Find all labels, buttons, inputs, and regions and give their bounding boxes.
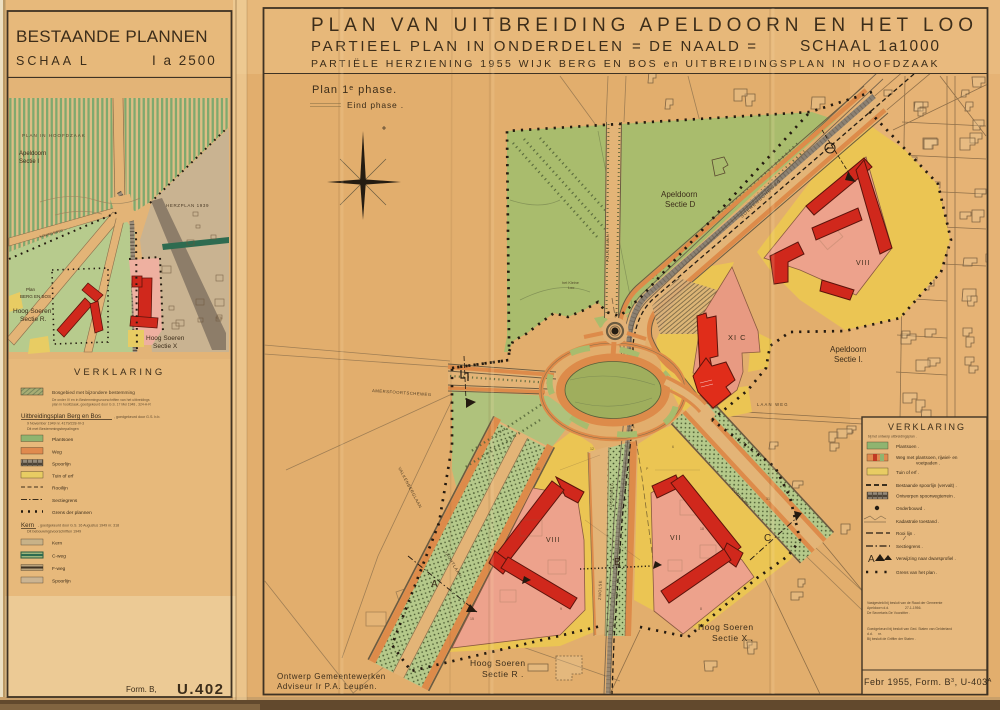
svg-text:A: A xyxy=(868,554,875,565)
svg-text:VII: VII xyxy=(670,535,682,542)
svg-text:Hoog Soeren: Hoog Soeren xyxy=(698,622,754,632)
svg-text:De onder IV en in Bestemmingsv: De onder IV en in Bestemmingsvoorschrift… xyxy=(52,398,150,402)
svg-text:6: 6 xyxy=(672,445,674,449)
svg-text:Rooi lijn .: Rooi lijn . xyxy=(896,531,915,536)
svg-text:Bestaande spoorlijn (vervalt): Bestaande spoorlijn (vervalt) . xyxy=(896,483,957,488)
svg-text:Uitbreidingsplan Berg en Bos: Uitbreidingsplan Berg en Bos xyxy=(21,413,101,420)
svg-text:Plantsoen: Plantsoen xyxy=(52,437,74,443)
svg-text:Spoorlijn: Spoorlijn xyxy=(52,462,71,468)
svg-text:Spoorlijn: Spoorlijn xyxy=(52,579,71,585)
svg-text:Sectie R.: Sectie R. xyxy=(20,316,47,323)
svg-text:voetpaden .: voetpaden . xyxy=(916,461,940,466)
svg-text:d.d.: d.d. xyxy=(867,632,873,636)
svg-text:BERG EN BOS: BERG EN BOS xyxy=(20,294,51,299)
svg-text:nr.: nr. xyxy=(878,632,882,636)
svg-text:PARTIËLE HERZIENING 1955: PARTIËLE HERZIENING 1955 WIJK BERG EN BO… xyxy=(311,58,938,70)
svg-text:Ontwerp Gemeentewerken: Ontwerp Gemeentewerken xyxy=(277,672,386,681)
svg-text:Verwijzing naar dwarsprofiel: Verwijzing naar dwarsprofiel . xyxy=(896,556,956,561)
svg-text:Bosgebied met bijzondere be: Bosgebied met bijzondere bestemming xyxy=(52,390,135,396)
svg-text:Apeldoorn: Apeldoorn xyxy=(830,345,866,354)
svg-text:U.402: U.402 xyxy=(177,681,225,698)
svg-text:PARTIEEL PLAN IN ONDERDELEN: PARTIEEL PLAN IN ONDERDELEN xyxy=(311,38,623,55)
svg-text:VERKLARING: VERKLARING xyxy=(74,367,165,378)
svg-text:Grens der plannen: Grens der plannen xyxy=(52,510,92,516)
svg-text:Sectiegrens: Sectiegrens xyxy=(52,498,78,504)
svg-text:Tuin of erf .: Tuin of erf . xyxy=(896,470,919,475)
svg-text:Grens van het plan .: Grens van het plan . xyxy=(896,570,937,575)
svg-text:Weg met plantsoen, rijwiel- en: Weg met plantsoen, rijwiel- en xyxy=(896,455,958,460)
svg-text:PLAN VAN UITBREIDING APELD: PLAN VAN UITBREIDING APELDOORN EN HET LO… xyxy=(311,15,975,36)
svg-text:9: 9 xyxy=(560,607,562,611)
svg-text:Adviseur Ir P.A. Leupen.: Adviseur Ir P.A. Leupen. xyxy=(277,682,377,691)
svg-text:Sectie D: Sectie D xyxy=(665,200,695,209)
svg-text:= DE NAALD =: = DE NAALD = xyxy=(632,38,757,55)
svg-text:Kadastrale toestand .: Kadastrale toestand . xyxy=(896,519,939,524)
svg-text:POLSELAAN: POLSELAAN xyxy=(605,234,610,262)
svg-text:SCHAA L: SCHAA L xyxy=(16,54,90,68)
svg-text:Plan: Plan xyxy=(26,287,36,292)
svg-text:VIII: VIII xyxy=(856,260,871,267)
svg-text:XI C: XI C xyxy=(728,333,747,342)
svg-text:het Kleine: het Kleine xyxy=(562,281,579,285)
svg-text:Apeldoorn: Apeldoorn xyxy=(661,190,697,199)
svg-text:, goedgekeurd door G.S. 16: , goedgekeurd door G.S. 16 Augustus 1949… xyxy=(38,524,119,528)
svg-text:8: 8 xyxy=(500,517,502,521)
svg-text:, goedgekeurd door G.S. b.b.: , goedgekeurd door G.S. b.b. xyxy=(114,415,160,419)
svg-text:Bij besluit de Griffier de: Bij besluit de Griffier der Staten . xyxy=(867,637,916,641)
svg-text:Sectie X: Sectie X xyxy=(153,343,178,350)
svg-text:41: 41 xyxy=(536,467,540,471)
svg-text:PLAN IN HOOFDZAAK: PLAN IN HOOFDZAAK xyxy=(22,133,86,138)
svg-text:Sectie X .: Sectie X . xyxy=(712,633,753,643)
svg-text:SCHAAL 1a1000: SCHAAL 1a1000 xyxy=(800,38,940,55)
svg-text:Onderbouwd .: Onderbouwd . xyxy=(896,506,925,511)
svg-text:De Secretaris De Voorzitter .: De Secretaris De Voorzitter . xyxy=(867,611,910,615)
svg-text:Plan 1e phase.: Plan 1e phase. xyxy=(312,84,397,96)
svg-text:Tuin of erf: Tuin of erf xyxy=(52,474,74,480)
svg-text:ZWOLSE: ZWOLSE xyxy=(597,580,603,600)
svg-text:27-1-1956.: 27-1-1956. xyxy=(905,606,921,610)
svg-text:B: B xyxy=(614,557,621,568)
svg-text:plan in hoofdzaak, goedgekeurd: plan in hoofdzaak, goedgekeurd door G.S.… xyxy=(52,403,151,407)
svg-text:9 November 1949 nr. 4179/228: 9 November 1949 nr. 4179/228-IV-3 xyxy=(27,422,84,426)
svg-text:Eind phase .: Eind phase . xyxy=(347,100,404,110)
svg-text:VERKLARING: VERKLARING xyxy=(888,422,966,432)
svg-text:I a 2500: I a 2500 xyxy=(152,53,217,68)
svg-text:Goedgekeurd bij besluit van: Goedgekeurd bij besluit van Ged. Staten … xyxy=(867,627,952,631)
svg-text:Weg: Weg xyxy=(52,450,62,456)
svg-text:Ontworpen spoorwegterrein .: Ontworpen spoorwegterrein . xyxy=(896,494,955,499)
svg-text:Form. B,: Form. B, xyxy=(126,685,157,694)
svg-text:18: 18 xyxy=(700,527,704,531)
svg-text:A: A xyxy=(431,579,438,590)
svg-text:Vastgesteld bij besluit van: Vastgesteld bij besluit van de Raad der … xyxy=(867,601,942,605)
svg-text:Hoog Soeren: Hoog Soeren xyxy=(13,308,52,315)
svg-text:Kern: Kern xyxy=(52,541,62,547)
svg-text:Sectie I: Sectie I xyxy=(19,159,39,165)
svg-text:Apeldoorn: Apeldoorn xyxy=(19,151,46,157)
svg-text:Sectiegrens .: Sectiegrens . xyxy=(896,544,923,549)
svg-text:8: 8 xyxy=(700,607,702,611)
svg-text:Rooilijn: Rooilijn xyxy=(52,486,68,492)
svg-text:Sectie I.: Sectie I. xyxy=(834,355,863,364)
svg-text:Dit met Bestemmingsbepalinge: Dit met Bestemmingsbepalingen xyxy=(27,427,79,431)
svg-text:C-weg: C-weg xyxy=(52,554,66,560)
svg-text:15: 15 xyxy=(470,617,474,621)
svg-text:Loo: Loo xyxy=(568,286,574,290)
svg-text:12: 12 xyxy=(590,447,594,451)
svg-text:F-weg: F-weg xyxy=(52,566,66,572)
svg-text:Febr 1955, Form. B3, U-403A: Febr 1955, Form. B3, U-403A xyxy=(864,677,992,687)
svg-text:BESTAANDE PLANNEN: BESTAANDE PLANNEN xyxy=(16,27,212,46)
svg-text:VIII: VIII xyxy=(546,537,561,544)
svg-text:Kern: Kern xyxy=(21,522,35,529)
svg-text:Hoog Soeren: Hoog Soeren xyxy=(146,335,185,342)
svg-text:Hoog Soeren: Hoog Soeren xyxy=(470,658,526,668)
svg-text:Plantsoen .: Plantsoen . xyxy=(896,444,919,449)
svg-text:Dit bebouwingsvoorschriften: Dit bebouwingsvoorschriften 1949 xyxy=(27,530,81,534)
svg-text:bij het ontwerp uitbreidings: bij het ontwerp uitbreidingsplan . xyxy=(868,435,917,439)
svg-text:HERZPLAN 1939: HERZPLAN 1939 xyxy=(166,203,209,208)
svg-text:Apeldoorn d.d.: Apeldoorn d.d. xyxy=(867,606,889,610)
